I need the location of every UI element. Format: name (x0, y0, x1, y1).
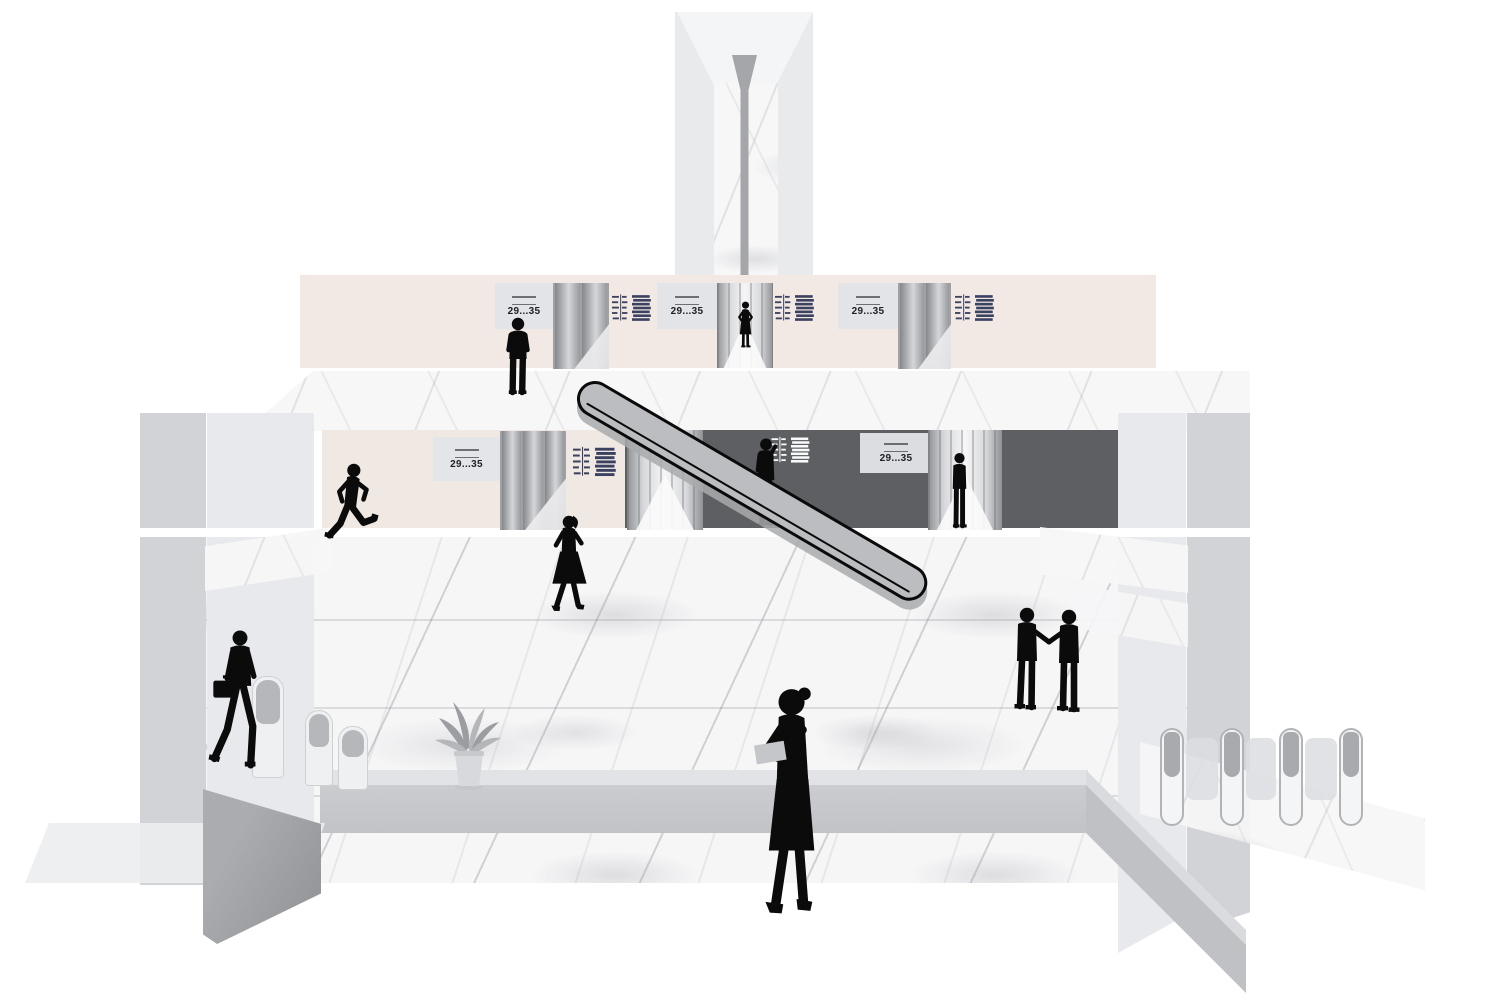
turnstile-post (1160, 728, 1184, 826)
elevator-door (926, 283, 950, 369)
elevator-door (900, 283, 924, 369)
potted-plant (433, 698, 503, 790)
turnstile-post (305, 710, 333, 786)
sign-floor-range: 29...35 (880, 454, 913, 464)
sign-caption (512, 296, 536, 305)
sign-floor-range: 29...35 (852, 307, 885, 317)
turnstile-cap (1224, 732, 1240, 777)
lobby-illustration: 29...35 29...35 29...35 29...35 (0, 0, 1497, 1004)
elevator-sign-lower-1: 29...35 (433, 437, 500, 481)
elevator-sign-upper-2: 29...35 (657, 283, 717, 329)
turnstile-cap (1343, 732, 1359, 777)
elevator-door (523, 431, 542, 530)
turnstile-post (1220, 728, 1244, 826)
pillar-left-outer (140, 413, 206, 885)
woman-carrying-item (752, 686, 843, 924)
elevator-door (502, 431, 521, 530)
turnstile-gate (1305, 738, 1337, 800)
turnstile-cap (1283, 732, 1299, 777)
standing-man (498, 317, 538, 397)
turnstile-cap (1164, 732, 1180, 777)
turnstile-cap (309, 714, 329, 747)
turnstile-post (1339, 728, 1363, 826)
floor-directory-icon (955, 288, 995, 330)
person-at-elevator (946, 452, 973, 532)
elevator-doors-upper-3 (898, 283, 951, 369)
running-man (318, 462, 380, 560)
elevator-sign-upper-3: 29...35 (838, 283, 898, 329)
man-with-briefcase (208, 628, 272, 778)
sign-floor-range: 29...35 (508, 307, 541, 317)
pillar-right-outer (1187, 413, 1250, 933)
elevator-door (555, 283, 580, 369)
elevator-doors-upper-1 (553, 283, 609, 369)
elevator-door (582, 283, 607, 369)
ledge-front (320, 785, 1088, 833)
turnstile-gate (1246, 738, 1276, 800)
turnstile-gate (1186, 738, 1218, 800)
sign-floor-range: 29...35 (671, 307, 704, 317)
sign-caption (856, 296, 880, 305)
two-men-shaking-hands (1002, 606, 1094, 766)
sign-caption (884, 443, 908, 452)
floor-directory-icon (612, 288, 652, 330)
elevator-sign-lower-2: 29...35 (860, 433, 932, 473)
turnstile-post (338, 726, 368, 790)
sign-caption (455, 449, 479, 458)
woman-in-elevator-corridor (735, 301, 756, 349)
sign-caption (675, 296, 699, 305)
walking-woman (543, 512, 599, 618)
mezzanine-floor (245, 371, 1250, 431)
turnstile-post (1279, 728, 1303, 826)
floor-directory-icon (775, 288, 815, 330)
turnstile-cap (342, 730, 364, 757)
sign-floor-range: 29...35 (450, 460, 483, 470)
floor-directory-icon (573, 437, 617, 489)
